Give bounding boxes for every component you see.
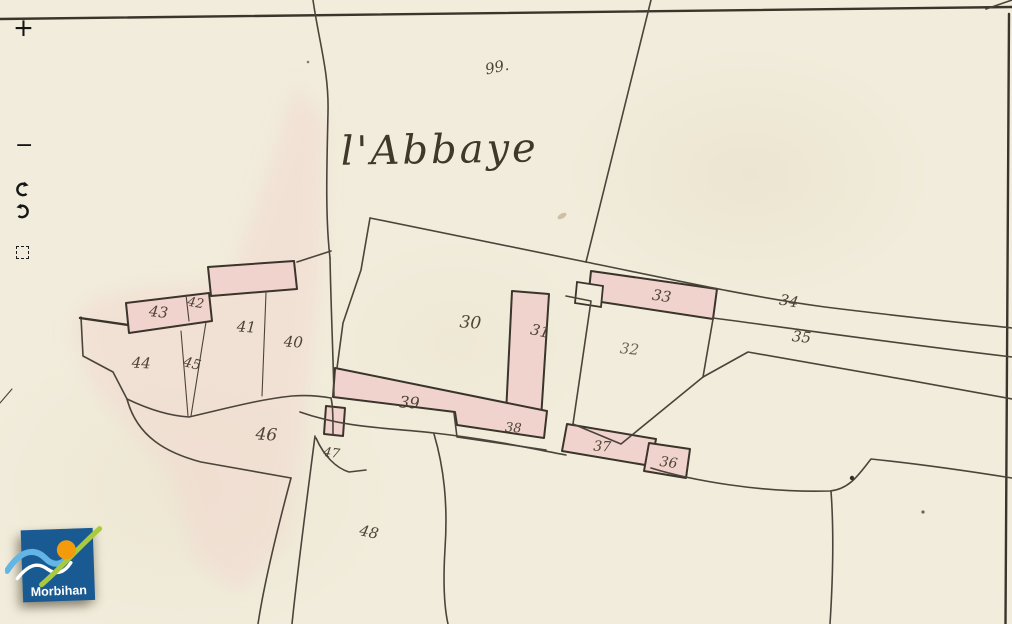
parcel-number-label: 99. <box>483 56 510 79</box>
ink-stain <box>850 476 854 480</box>
parcel-number-label: 38 <box>504 420 522 436</box>
rotate-counterclockwise-icon <box>14 203 31 220</box>
parcel-number-label: 42 <box>185 295 205 313</box>
parcel-number-label: 44 <box>130 353 151 372</box>
parcel-number-label: 40 <box>282 332 304 351</box>
sheet-border-right <box>1006 14 1010 624</box>
parcel-number-label: 46 <box>254 424 278 446</box>
rotate-clockwise-button[interactable] <box>14 181 31 198</box>
place-name-label: l'Abbaye <box>340 125 539 174</box>
parcel-boundary <box>337 218 370 368</box>
parcel-number-label: 33 <box>651 286 672 306</box>
sheet-border-top <box>0 7 1012 19</box>
rotate-counterclockwise-button[interactable] <box>14 203 31 220</box>
ink-stain <box>556 211 567 220</box>
parcel-number-label: 32 <box>619 339 640 359</box>
parcel-boundary <box>703 319 713 377</box>
parcel-boundary <box>330 258 334 396</box>
zoom-out-button[interactable]: − <box>15 135 33 157</box>
parcel-number-label: 30 <box>459 312 482 333</box>
parcel-number-label: 48 <box>357 521 380 543</box>
parcel-number-label: 39 <box>399 392 421 412</box>
parcel-boundary <box>703 352 1012 399</box>
parcel-number-label: 36 <box>659 454 679 472</box>
parcel-number-label: 35 <box>791 327 812 347</box>
road-line <box>651 459 1012 491</box>
parcel-number-label: 47 <box>321 445 341 462</box>
parcel-notch <box>575 282 603 307</box>
parcel-number-label: 43 <box>147 302 169 322</box>
building-parcel-31 <box>506 291 549 419</box>
parcel-boundary <box>370 218 586 262</box>
stray-mark <box>0 389 12 403</box>
logo-text: Morbihan <box>30 583 87 599</box>
select-area-icon <box>16 246 29 259</box>
rotate-clockwise-icon <box>14 181 31 198</box>
parcel-boundary <box>566 296 703 444</box>
morbihan-logo[interactable]: Morbihan <box>3 520 118 616</box>
select-area-button[interactable] <box>16 246 29 259</box>
road-line <box>830 491 833 624</box>
ink-stain <box>921 510 924 513</box>
parcel-boundary <box>434 434 448 624</box>
map-canvas[interactable]: 99.3031323334353637383940414243444546474… <box>0 0 1012 624</box>
zoom-in-button[interactable]: + <box>13 15 34 40</box>
parcel-number-label: 37 <box>593 439 612 456</box>
map-viewer: 99.3031323334353637383940414243444546474… <box>0 0 1012 624</box>
ink-stain <box>307 61 310 64</box>
parcel-number-label: 34 <box>778 291 800 312</box>
road-line <box>586 0 651 262</box>
parcel-number-label: 41 <box>235 317 256 336</box>
building-parcel <box>208 261 297 296</box>
